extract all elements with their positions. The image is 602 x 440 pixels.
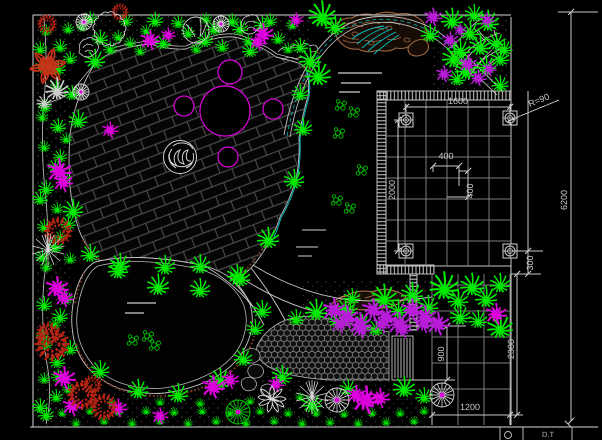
- svg-text:400: 400: [465, 183, 475, 198]
- svg-text:1200: 1200: [460, 402, 480, 412]
- svg-text:2000: 2000: [387, 180, 397, 200]
- svg-text:D.T: D.T: [542, 430, 555, 439]
- svg-text:6200: 6200: [559, 190, 569, 210]
- svg-text:400: 400: [438, 151, 453, 161]
- svg-text:2300: 2300: [506, 339, 516, 359]
- svg-text:900: 900: [436, 346, 446, 361]
- svg-text:1600: 1600: [448, 96, 468, 106]
- svg-text:300: 300: [525, 255, 535, 270]
